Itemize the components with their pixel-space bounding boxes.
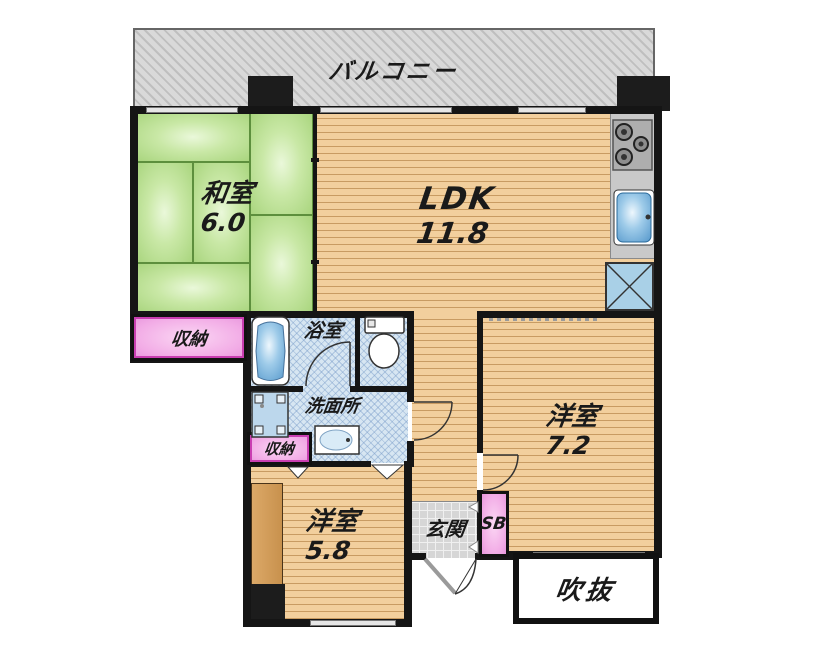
bedroom-right-name: 洋室 — [510, 403, 634, 432]
door-tick — [311, 158, 319, 162]
wall-segment — [355, 313, 360, 388]
genkan-label: 玄関 — [413, 518, 476, 540]
bedroom-bottom-area: 5.8 — [266, 537, 390, 565]
window — [146, 107, 238, 113]
bedroom-right-area: 7.2 — [506, 432, 630, 460]
window — [310, 620, 396, 626]
storage-mid-label: 収納 — [263, 438, 296, 459]
wall-segment — [654, 106, 662, 558]
sliding-door-mark — [489, 318, 599, 321]
door-tick — [311, 260, 319, 264]
entrance-double-door-icon — [425, 559, 476, 594]
void-space: 吹抜 — [513, 553, 659, 624]
washitsu-label: 和室 6.0 — [161, 180, 289, 237]
ldk-area: 11.8 — [390, 217, 515, 249]
window — [320, 107, 452, 113]
storage-left-label: 収納 — [169, 325, 209, 351]
floor-plan: バルコニー — [0, 0, 840, 659]
wall-segment — [350, 386, 409, 392]
shoe-box: SB — [479, 491, 509, 557]
window — [518, 107, 586, 113]
balcony-label: バルコニー — [327, 52, 461, 86]
wall-segment — [404, 553, 426, 560]
balcony-area: バルコニー — [133, 28, 655, 110]
washroom-label: 洗面所 — [287, 397, 378, 417]
ldk-label: LDK 11.8 — [390, 182, 519, 249]
bedroom-bottom-name: 洋室 — [270, 508, 394, 537]
ldk-name: LDK — [395, 182, 520, 217]
pillar-bottom-left — [245, 584, 285, 622]
storage-left-box: 収納 — [131, 314, 247, 361]
tatami-mat — [136, 263, 250, 313]
bedroom-bottom-label: 洋室 5.8 — [266, 508, 394, 565]
hallway-floor — [412, 313, 477, 503]
bedroom-right-label: 洋室 7.2 — [506, 403, 634, 460]
wall-washitsu-ldk — [313, 112, 317, 315]
wall-segment — [404, 461, 412, 627]
tatami-mat — [136, 112, 250, 162]
shoe-box-label: SB — [480, 514, 508, 534]
bathroom-label: 浴室 — [291, 321, 356, 342]
wall-segment — [477, 311, 662, 318]
wall-segment — [249, 386, 303, 392]
washitsu-area: 6.0 — [161, 209, 285, 237]
storage-mid-box: 収納 — [247, 432, 312, 465]
pillar-top-center — [248, 76, 293, 109]
wall-segment — [316, 311, 414, 318]
void-label: 吹抜 — [553, 570, 618, 607]
wall-segment — [477, 311, 483, 453]
washitsu-name: 和室 — [165, 180, 289, 209]
kitchen-counter — [610, 113, 656, 259]
